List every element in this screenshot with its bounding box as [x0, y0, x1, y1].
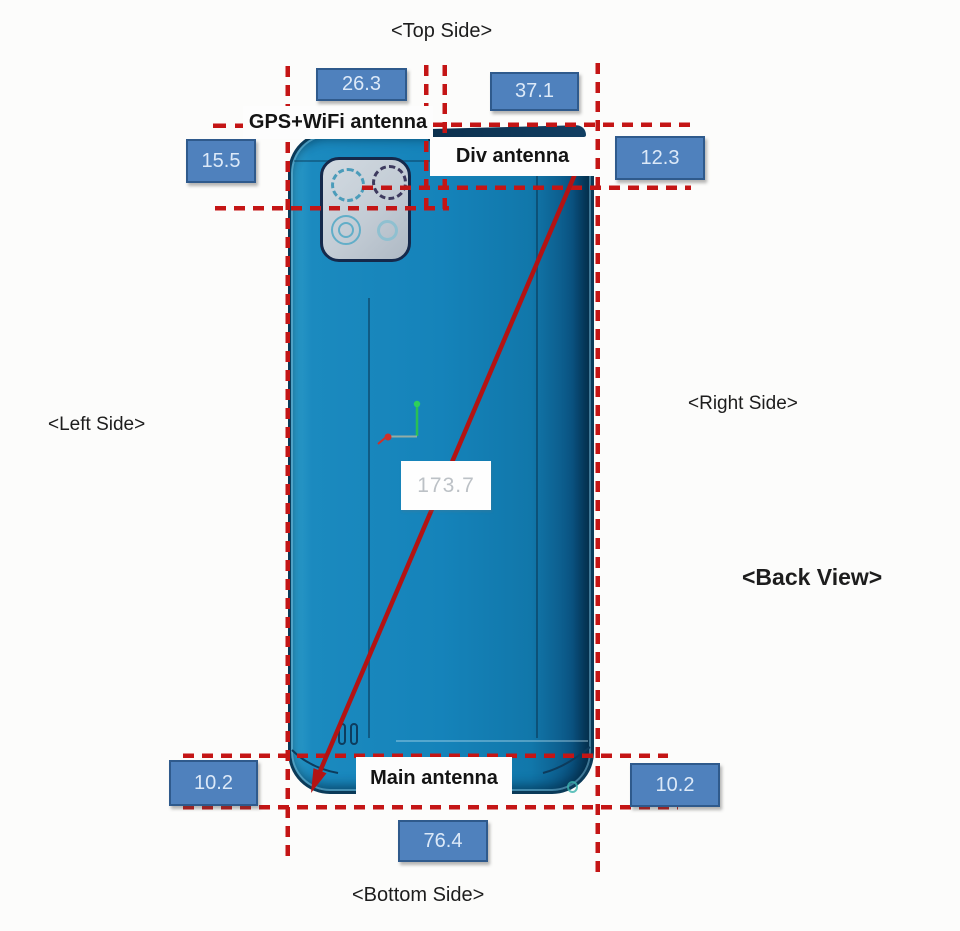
gps-wifi-antenna-label: GPS+WiFi antenna — [243, 106, 433, 139]
camera-lens-top-right — [372, 165, 407, 200]
dimension-box-bottom-left: 10.2 — [169, 760, 258, 806]
right-side-label: <Right Side> — [688, 393, 798, 415]
phone-panel-seam-left — [368, 298, 370, 738]
phone-panel-seam-right — [536, 170, 538, 738]
back-view-label: <Back View> — [742, 564, 882, 591]
top-side-label: <Top Side> — [391, 20, 492, 43]
left-side-label: <Left Side> — [48, 414, 145, 436]
dimension-box-right-top: 12.3 — [615, 136, 705, 180]
camera-lens-bottom-left — [331, 215, 361, 245]
antenna-placement-diagram: GPS+WiFi antenna Div antenna Main antenn… — [0, 0, 960, 931]
bottom-side-label: <Bottom Side> — [352, 884, 484, 907]
dimension-box-top-right: 37.1 — [490, 72, 579, 111]
dimension-box-bottom-right: 10.2 — [630, 763, 720, 807]
dimension-box-top-left: 26.3 — [316, 68, 407, 101]
camera-lens-top-left — [331, 168, 365, 202]
watermark-glyph — [567, 781, 578, 793]
camera-flash — [377, 220, 398, 241]
main-antenna-label: Main antenna — [356, 757, 512, 800]
bottom-port-slot — [338, 723, 346, 745]
bottom-port-slot — [350, 723, 358, 745]
dimension-box-left-top: 15.5 — [186, 139, 256, 183]
diagonal-dimension-value: 173.7 — [401, 461, 491, 510]
dimension-box-bottom-width: 76.4 — [398, 820, 488, 862]
div-antenna-label: Div antenna — [430, 137, 595, 176]
